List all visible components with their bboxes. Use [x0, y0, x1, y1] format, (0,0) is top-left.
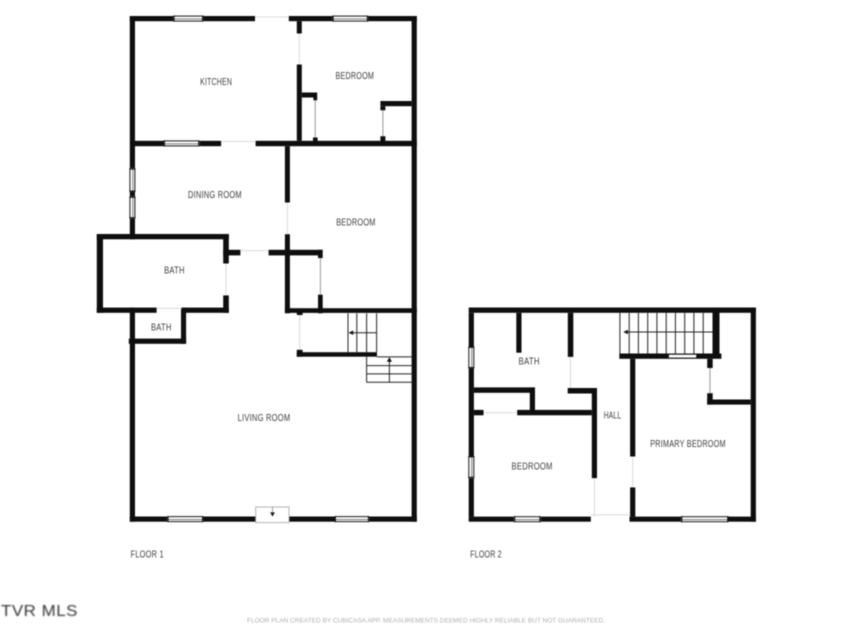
- svg-text:KITCHEN: KITCHEN: [200, 77, 232, 88]
- svg-text:LIVING ROOM: LIVING ROOM: [238, 413, 291, 424]
- svg-text:TVR MLS: TVR MLS: [1, 603, 78, 620]
- svg-text:PRIMARY BEDROOM: PRIMARY BEDROOM: [650, 439, 726, 450]
- svg-text:BATH: BATH: [164, 265, 185, 276]
- svg-text:DINING ROOM: DINING ROOM: [188, 190, 242, 201]
- svg-text:FLOOR 1: FLOOR 1: [131, 550, 164, 561]
- svg-text:BEDROOM: BEDROOM: [336, 71, 375, 82]
- svg-text:BATH: BATH: [151, 323, 172, 334]
- svg-text:BEDROOM: BEDROOM: [512, 462, 553, 473]
- svg-text:HALL: HALL: [604, 411, 622, 422]
- svg-text:BEDROOM: BEDROOM: [336, 218, 375, 229]
- svg-text:FLOOR 2: FLOOR 2: [470, 550, 502, 561]
- svg-text:FLOOR PLAN CREATED BY CUBICASA: FLOOR PLAN CREATED BY CUBICASA APP. MEAS…: [247, 617, 605, 624]
- svg-text:BATH: BATH: [519, 356, 540, 367]
